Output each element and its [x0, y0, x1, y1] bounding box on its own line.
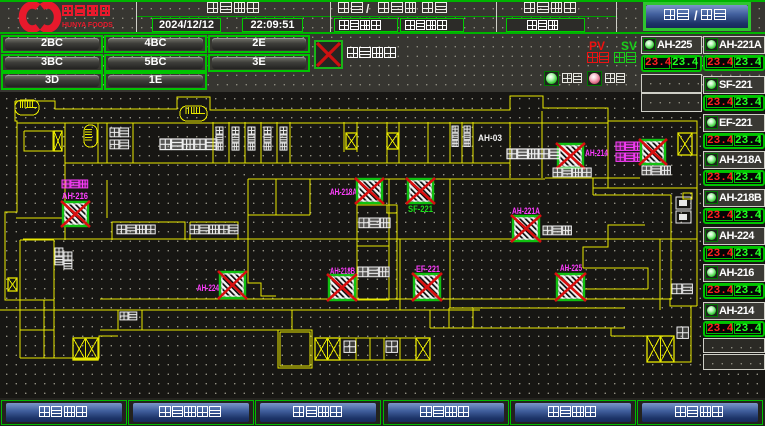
svg-text:AH-214: AH-214 — [585, 148, 608, 158]
svg-text:AH-224: AH-224 — [197, 283, 219, 293]
svg-text:EF-221: EF-221 — [416, 264, 440, 274]
svg-text:AH-03: AH-03 — [478, 133, 502, 143]
svg-text:AH-218A: AH-218A — [330, 187, 357, 197]
svg-text:AH-225: AH-225 — [560, 263, 582, 273]
svg-text:SF-221: SF-221 — [408, 204, 433, 214]
svg-text:AH-216: AH-216 — [62, 191, 88, 201]
svg-text:AH-221A: AH-221A — [512, 206, 540, 216]
